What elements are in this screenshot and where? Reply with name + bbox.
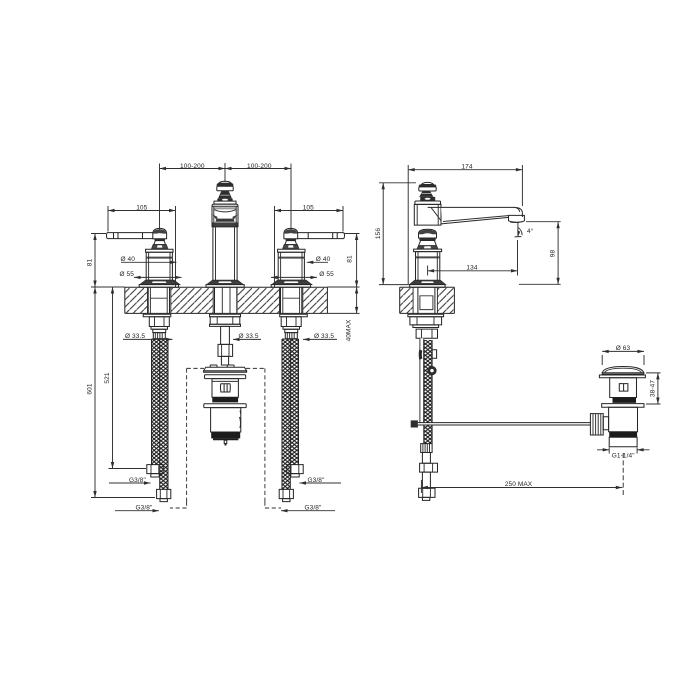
svg-text:38-47: 38-47 (649, 380, 656, 397)
svg-text:Ø 55: Ø 55 (319, 271, 334, 278)
svg-text:4°: 4° (527, 227, 534, 235)
svg-text:Ø 40: Ø 40 (316, 256, 331, 263)
svg-text:40MAX: 40MAX (346, 319, 353, 341)
svg-text:601: 601 (87, 383, 94, 394)
svg-text:98: 98 (550, 250, 557, 258)
svg-text:81: 81 (346, 255, 353, 263)
svg-text:Ø 63: Ø 63 (616, 345, 631, 352)
svg-text:81: 81 (87, 259, 94, 267)
svg-text:100-200: 100-200 (247, 163, 272, 170)
svg-text:G1-1/4": G1-1/4" (612, 453, 635, 460)
svg-text:Ø 40: Ø 40 (121, 256, 136, 263)
svg-text:156: 156 (375, 228, 382, 239)
svg-text:Ø 55: Ø 55 (120, 271, 135, 278)
svg-text:521: 521 (104, 372, 111, 383)
svg-text:134: 134 (466, 265, 477, 272)
svg-text:105: 105 (303, 205, 314, 212)
svg-text:250 MAX: 250 MAX (505, 481, 533, 488)
svg-text:100-200: 100-200 (180, 163, 205, 170)
svg-text:105: 105 (136, 205, 147, 212)
svg-text:174: 174 (461, 163, 472, 170)
